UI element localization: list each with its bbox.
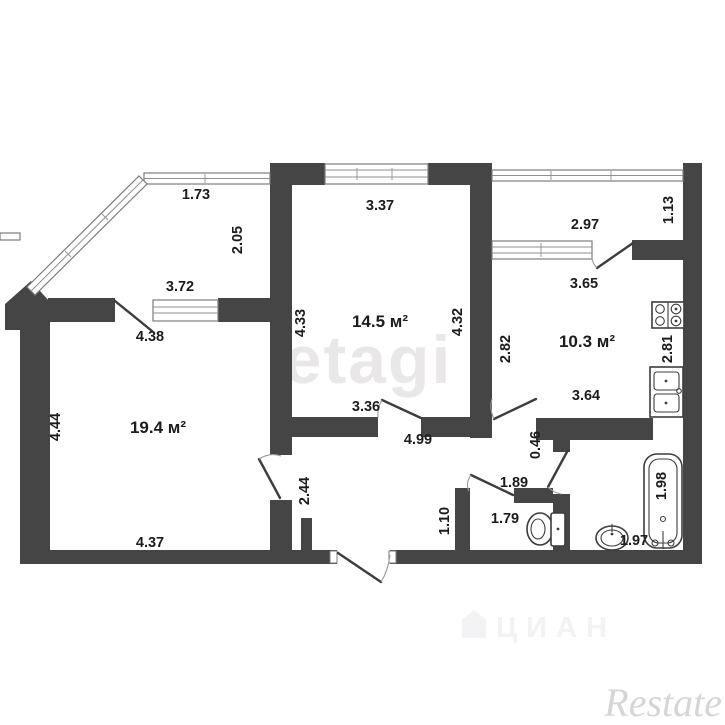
watermark-cian: ЦИАН (496, 612, 616, 644)
dim-label-1-97: 1.97 (620, 533, 648, 549)
wall-bath-top (536, 418, 653, 440)
dim-label-3-72: 3.72 (166, 279, 194, 295)
dim-label-1-13: 1.13 (661, 196, 677, 224)
wall-spine-upper (270, 163, 292, 455)
wall-bottom-right (390, 550, 702, 564)
window-kitchen (492, 241, 592, 259)
watermark-restate: Restate (603, 680, 722, 725)
dim-label-0-46: 0.46 (528, 431, 544, 459)
wall-top-left-of-window (270, 163, 325, 185)
dim-label-4-99: 4.99 (404, 432, 432, 448)
kitchen-sink-icon (650, 367, 683, 417)
dim-label-1-79: 1.79 (491, 511, 519, 527)
neighbour-glazing (0, 233, 20, 240)
wall-entry-pier (301, 518, 312, 564)
dim-label-4-44: 4.44 (48, 413, 64, 441)
dim-label-2-05: 2.05 (230, 226, 246, 254)
room-label-kitchen: 10.3 м² (559, 332, 615, 351)
wall-right (683, 163, 702, 564)
dim-label-4-38: 4.38 (136, 329, 164, 345)
dim-label-4-37: 4.37 (136, 535, 164, 551)
dim-label-2-97: 2.97 (571, 217, 599, 233)
dim-label-2-44: 2.44 (297, 477, 313, 505)
dim-label-2-81: 2.81 (660, 335, 676, 363)
wall-living-top-right (218, 298, 272, 322)
dim-label-1-98: 1.98 (654, 472, 670, 500)
room-label-living: 19.4 м² (130, 418, 186, 437)
dim-label-3-36: 3.36 (352, 399, 380, 415)
bathtub-icon (644, 454, 682, 549)
dim-label-1-10: 1.10 (437, 507, 453, 535)
stove-icon (652, 302, 684, 328)
window-living (153, 300, 218, 321)
wall-living-top-left (48, 298, 115, 322)
window-balcony-strip (144, 173, 270, 184)
dim-label-2-82: 2.82 (498, 335, 514, 363)
wall-left (20, 322, 50, 564)
dim-label-4-33: 4.33 (293, 309, 309, 337)
wall-balcony-bottom (632, 240, 683, 260)
wall-bedroom-kitchen (470, 163, 492, 438)
floorplan-svg: etagi (0, 0, 725, 725)
window-balcony-top (492, 170, 683, 181)
dim-label-3-65: 3.65 (570, 276, 598, 292)
dim-label-1-89: 1.89 (500, 475, 528, 491)
dim-label-3-37: 3.37 (366, 198, 394, 214)
dim-label-3-64: 3.64 (572, 388, 600, 404)
room-label-bedroom: 14.5 м² (352, 312, 408, 331)
wall-bedroom-bottom-left (292, 417, 378, 437)
dim-label-4-32: 4.32 (450, 308, 466, 336)
floorplan-image: etagi (0, 0, 725, 725)
toilet-icon (527, 513, 565, 546)
window-bedroom (325, 164, 428, 184)
wall-bottom-left (20, 550, 337, 564)
dim-label-1-73: 1.73 (182, 187, 210, 203)
